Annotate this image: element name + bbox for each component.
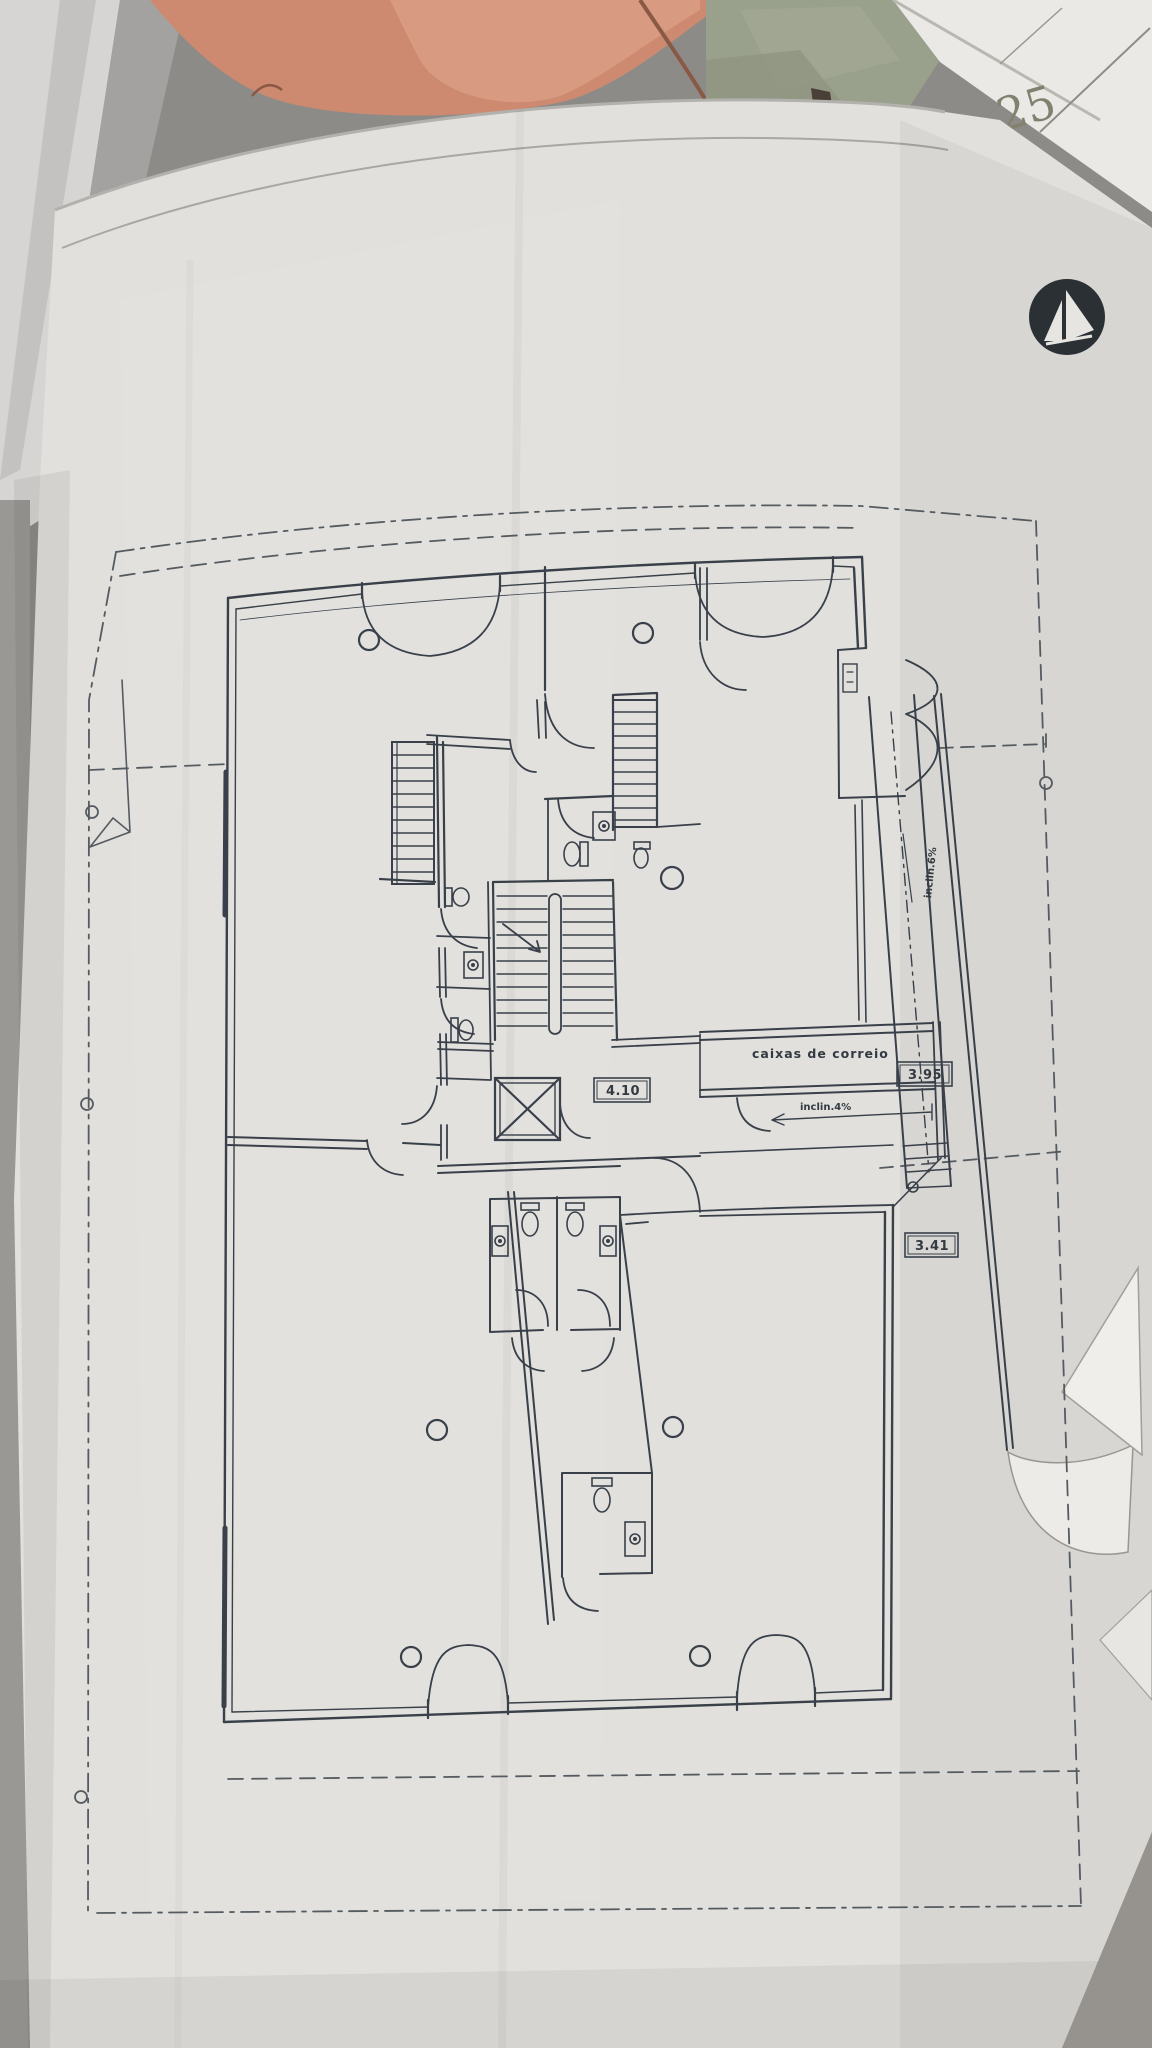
dim-lower-right-label: 3.41 bbox=[915, 1239, 949, 1254]
dim-upper-right-label: 3.95 bbox=[908, 1068, 942, 1083]
ramp-note-horizontal: inclin.4% bbox=[800, 1102, 851, 1113]
dim-core-label: 4.10 bbox=[606, 1084, 640, 1099]
paper-sheet bbox=[0, 100, 1152, 2048]
photo-floor-plan: 25 bbox=[0, 0, 1152, 2048]
mailboxes-label: caixas de correio bbox=[752, 1046, 889, 1061]
architect-logo bbox=[1029, 279, 1105, 355]
